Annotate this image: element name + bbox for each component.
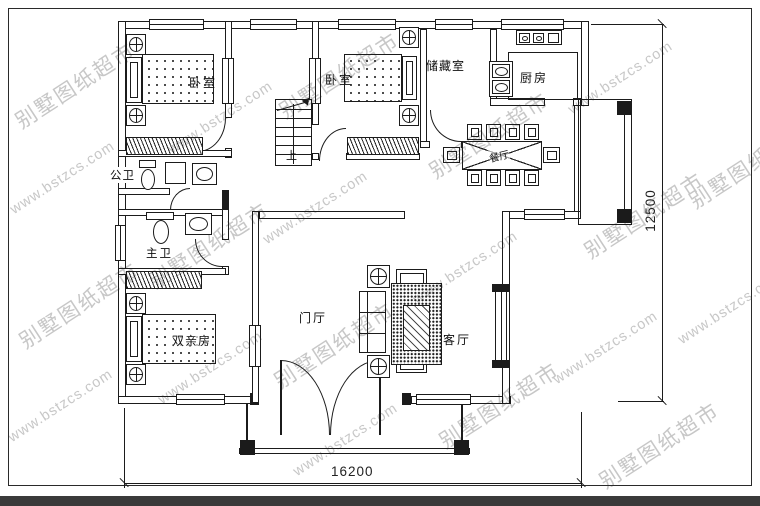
dining-chair	[443, 147, 460, 163]
nightstand-lamp	[399, 27, 419, 48]
wall-corridor-stub	[222, 190, 229, 209]
porch-column	[617, 209, 631, 223]
door-jamb	[402, 393, 411, 405]
opening-bedroom1-east	[222, 58, 234, 104]
curtain-box	[492, 284, 509, 292]
dining-chair	[467, 124, 482, 140]
extension-line	[591, 24, 664, 25]
toilet-tank	[146, 212, 174, 220]
nightstand-lamp	[126, 293, 146, 314]
wall-kitchen-east	[581, 21, 589, 106]
window-stairhall-north	[250, 19, 297, 30]
extension-line	[618, 401, 664, 402]
window-bedroom2-north	[338, 19, 396, 30]
wall-masterbath-east-upper	[222, 209, 229, 240]
window-parents-room-south	[176, 394, 225, 405]
dining-chair	[524, 124, 539, 140]
floor-plan-canvas: 上 卧室 卧室 储藏室 厨房 餐厅 公卫 主卫	[0, 0, 760, 506]
sink-basin	[492, 80, 510, 94]
stove-burner	[519, 33, 530, 43]
bath-sink	[192, 163, 217, 185]
bed-pillow-board	[402, 56, 417, 100]
dimension-line-bottom	[124, 483, 582, 484]
dimension-width: 16200	[331, 464, 374, 479]
porch-column	[617, 101, 631, 115]
room-label-bedroom2: 卧室	[325, 71, 353, 88]
opening-bedroom2-west	[309, 58, 321, 104]
side-porch-inner-line	[624, 101, 625, 223]
stove-control	[548, 33, 559, 43]
porch-column	[240, 440, 255, 455]
wall-publicbath-south	[118, 188, 170, 195]
extension-line	[581, 412, 582, 488]
stove-unit	[516, 30, 562, 45]
stove-burner	[533, 33, 544, 43]
wall-foyer-west	[252, 211, 259, 403]
dining-chair	[486, 124, 501, 140]
wardrobe	[347, 137, 419, 155]
bath-sink	[185, 213, 212, 235]
window-bedroom1-north	[149, 19, 204, 30]
window-living-south	[416, 394, 471, 405]
window-masterbath-west	[115, 225, 126, 261]
dining-chair	[543, 147, 560, 163]
room-label-master-bath: 主卫	[146, 245, 173, 261]
extension-line	[124, 408, 125, 488]
room-label-foyer: 门厅	[299, 309, 327, 326]
dining-chair	[524, 170, 539, 186]
room-label-public-bath: 公卫	[110, 167, 135, 183]
window-living-east	[495, 288, 507, 364]
toilet-bowl	[141, 169, 155, 190]
dining-chair	[486, 170, 501, 186]
stairs-up-label: 上	[286, 147, 299, 163]
wardrobe	[126, 271, 202, 289]
floor-lamp-table	[367, 265, 390, 288]
toilet-bowl	[153, 220, 169, 244]
nightstand-lamp	[126, 364, 146, 385]
dining-chair	[467, 170, 482, 186]
window-storage-north	[435, 19, 473, 30]
room-label-storage: 储藏室	[426, 57, 465, 74]
nightstand-lamp	[126, 34, 146, 55]
room-label-bedroom1: 卧室	[189, 74, 217, 91]
wardrobe	[126, 137, 203, 155]
kitchen-sink-unit	[489, 61, 513, 97]
window-kitchen-north	[501, 19, 564, 30]
curtain-box	[492, 360, 509, 368]
wall-storage-west	[420, 29, 427, 148]
room-label-kitchen: 厨房	[520, 69, 548, 86]
window-living-northeast	[524, 209, 565, 220]
nightstand-lamp	[399, 105, 419, 126]
sink-basin	[492, 64, 510, 78]
porch-step	[239, 448, 470, 454]
floor-lamp-table	[367, 355, 390, 378]
porch-column	[454, 440, 469, 455]
footer-bar	[0, 496, 760, 506]
bed-pillow-board	[126, 316, 142, 362]
wall-foyer-north	[259, 211, 405, 219]
dimension-height: 12500	[643, 189, 658, 232]
bed-pillow-board	[126, 57, 142, 103]
toilet-tank	[139, 160, 156, 168]
wall-bedroom2-south-stub	[312, 153, 319, 160]
room-label-parents-room: 双亲房	[172, 332, 211, 349]
coffee-table	[403, 305, 430, 351]
dimension-line-right	[662, 24, 663, 402]
room-label-living: 客厅	[443, 331, 471, 348]
opening-parents-room-east	[249, 325, 261, 367]
dining-chair	[505, 170, 520, 186]
dining-chair	[505, 124, 520, 140]
shower-tray	[165, 162, 186, 184]
sofa-three-seat	[359, 291, 386, 353]
wall-storage-south-left	[420, 141, 430, 148]
nightstand-lamp	[126, 105, 146, 126]
